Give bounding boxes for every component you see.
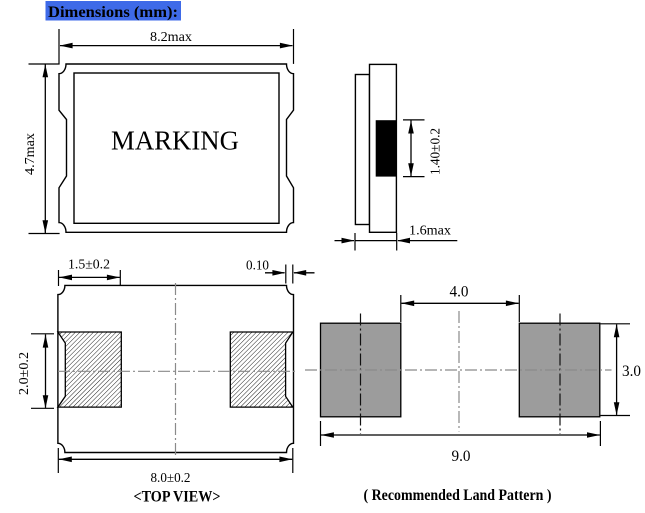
svg-text:9.0: 9.0 <box>452 448 471 465</box>
svg-text:2.0±0.2: 2.0±0.2 <box>17 352 32 395</box>
svg-text:4.7max: 4.7max <box>23 133 38 175</box>
svg-text:0.10: 0.10 <box>246 258 269 273</box>
svg-text:Dimensions (mm):: Dimensions (mm): <box>48 4 178 21</box>
svg-text:4.0: 4.0 <box>450 284 469 301</box>
svg-text:3.0: 3.0 <box>622 363 641 380</box>
svg-text:8.2max: 8.2max <box>150 30 192 45</box>
svg-text:1.6max: 1.6max <box>409 224 451 239</box>
svg-text:1.40±0.2: 1.40±0.2 <box>429 128 444 175</box>
svg-text:MARKING: MARKING <box>111 126 239 156</box>
svg-text:<TOP VIEW>: <TOP VIEW> <box>134 489 221 506</box>
svg-text:8.0±0.2: 8.0±0.2 <box>151 471 191 486</box>
svg-text:1.5±0.2: 1.5±0.2 <box>68 258 110 273</box>
svg-text:( Recommended Land Pattern ): ( Recommended Land Pattern ) <box>364 487 552 504</box>
